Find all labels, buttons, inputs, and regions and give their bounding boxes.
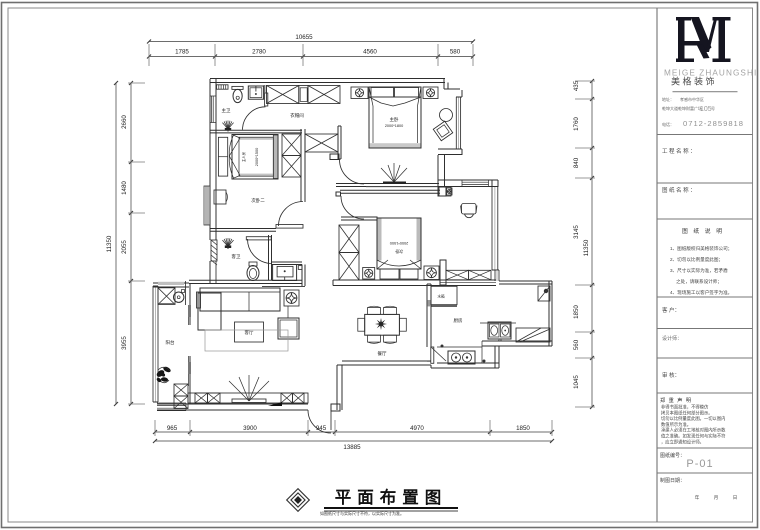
- svg-text:2660: 2660: [121, 115, 128, 129]
- svg-text:3、尺寸以实际为准，若矛盾: 3、尺寸以实际为准，若矛盾: [670, 267, 728, 274]
- svg-text:阳台: 阳台: [166, 339, 175, 346]
- svg-text:主卧: 主卧: [390, 116, 399, 123]
- svg-text:衣帽间: 衣帽间: [290, 112, 304, 119]
- svg-text:客卫: 客卫: [232, 253, 241, 260]
- svg-text:P-01: P-01: [686, 458, 713, 470]
- svg-text:10655: 10655: [295, 34, 313, 41]
- svg-text:1760: 1760: [573, 117, 580, 131]
- svg-text:4560: 4560: [363, 49, 377, 56]
- svg-text:4、现场施工以客户签字为准。: 4、现场施工以客户签字为准。: [670, 289, 732, 296]
- svg-text:2055: 2055: [121, 240, 128, 254]
- svg-text:号: 号: [711, 105, 715, 111]
- svg-text:0.8: 0.8: [498, 338, 503, 342]
- svg-text:设计师：: 设计师：: [662, 335, 682, 342]
- svg-text:工 程 名 称 ：: 工 程 名 称 ：: [662, 147, 696, 155]
- svg-text:965: 965: [167, 425, 178, 432]
- svg-text:2000*1500: 2000*1500: [255, 148, 259, 166]
- svg-text:1850: 1850: [516, 425, 530, 432]
- svg-text:1850: 1850: [573, 305, 580, 319]
- svg-text:之处，请联系设计师；: 之处，请联系设计师；: [676, 278, 722, 285]
- svg-text:580: 580: [450, 49, 461, 56]
- svg-text:电话：: 电话：: [662, 121, 674, 127]
- svg-text:，应立即通知设计师。: ，应立即通知设计师。: [661, 438, 704, 445]
- svg-text:制图日期：: 制图日期：: [660, 477, 685, 484]
- svg-text:2780: 2780: [252, 49, 266, 56]
- svg-text:图 纸 说 明: 图 纸 说 明: [682, 227, 724, 235]
- svg-text:地址：: 地址：: [662, 96, 674, 102]
- svg-text:水箱: 水箱: [437, 294, 445, 299]
- svg-text:郑 重 声 明: 郑 重 声 明: [660, 396, 692, 404]
- svg-text:年: 年: [695, 494, 700, 501]
- svg-text:2000*1800: 2000*1800: [385, 124, 403, 128]
- svg-text:次卧二: 次卧二: [251, 197, 265, 204]
- svg-text:1480: 1480: [121, 181, 128, 195]
- svg-text:1785: 1785: [175, 49, 189, 56]
- svg-text:0712-2859818: 0712-2859818: [683, 119, 744, 128]
- svg-text:图 纸 名 称 ：: 图 纸 名 称 ：: [662, 186, 696, 194]
- svg-text:主卫: 主卫: [222, 107, 231, 113]
- svg-text:3900: 3900: [243, 425, 257, 432]
- svg-text:2000*1500: 2000*1500: [390, 241, 408, 245]
- svg-text:1、图纸版权归美格装饰公司；: 1、图纸版权归美格装饰公司；: [670, 245, 732, 252]
- svg-text:3145: 3145: [573, 225, 580, 239]
- svg-text:435: 435: [573, 80, 580, 91]
- svg-text:840: 840: [573, 157, 580, 168]
- svg-text:餐厅: 餐厅: [378, 350, 387, 357]
- svg-text:3955: 3955: [121, 336, 128, 350]
- svg-text:如图纸尺寸与实际尺寸不符，以实际尺寸为准。: 如图纸尺寸与实际尺寸不符，以实际尺寸为准。: [320, 510, 404, 516]
- svg-text:11350: 11350: [106, 235, 113, 252]
- svg-text:孝感市中华区: 孝感市中华区: [680, 96, 704, 102]
- svg-text:560: 560: [573, 339, 580, 350]
- svg-text:次卧: 次卧: [395, 248, 403, 255]
- svg-text:乾坤大道乾坤财富广场: 乾坤大道乾坤财富广场: [662, 105, 702, 111]
- svg-text:厨房: 厨房: [454, 317, 463, 324]
- svg-text:11350: 11350: [583, 239, 590, 256]
- svg-text:主人房: 主人房: [241, 151, 246, 162]
- svg-text:美格装饰: 美格装饰: [671, 76, 717, 87]
- svg-text:图纸编号：: 图纸编号：: [660, 452, 685, 459]
- svg-text:1045: 1045: [573, 375, 580, 389]
- svg-text:4970: 4970: [410, 425, 424, 432]
- svg-text:平面布置图: 平面布置图: [335, 487, 448, 507]
- svg-text:13885: 13885: [343, 444, 361, 451]
- svg-text:客 户：: 客 户：: [662, 306, 680, 314]
- svg-text:审 核：: 审 核：: [662, 371, 680, 379]
- svg-text:2、切勿以比例量度此图；: 2、切勿以比例量度此图；: [670, 256, 723, 263]
